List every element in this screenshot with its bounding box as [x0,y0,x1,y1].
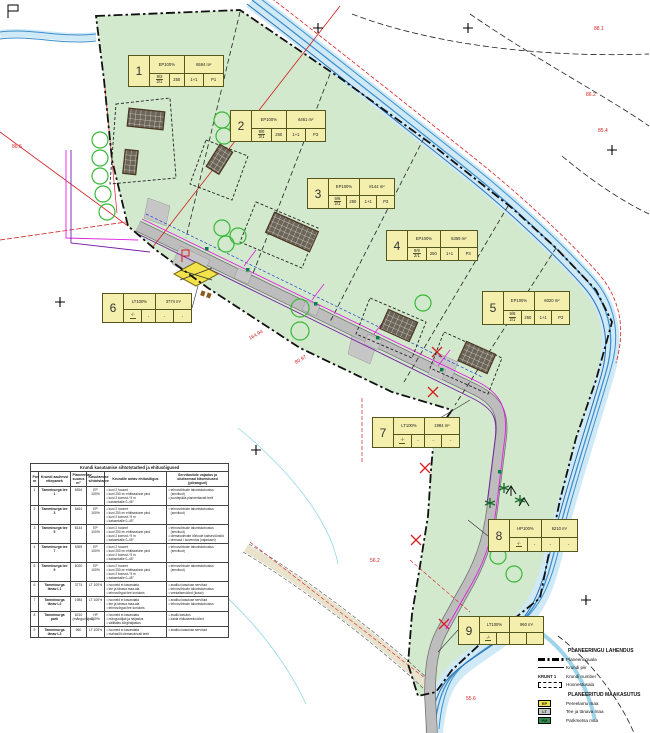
row-pos: 7 [31,597,39,612]
row-restrictions: tehnovõrkude talumiskohustus (servituut) [167,506,229,525]
plot-footprint: 250 [521,310,534,324]
plot-label-6: 6LT100%3774 m²-/---- [102,293,192,323]
plot-parking: P3 [305,128,325,142]
row-pos: 6 [31,582,39,597]
row-size: 5359 [71,544,87,563]
row-name: Tamminurga tee 1 [39,487,71,506]
landuse-color-swatch: PM [538,717,551,724]
table-row: 8Tamminurga park6210 (mänguväljak)HP 100… [31,612,229,627]
row-rights: hooneid ei kavandatatee ja tänava maa-al… [105,597,167,612]
plot-label-3: 3EP100%8144 m²9/62/12501+1P3 [307,178,395,209]
plot-landuse: EP100% [504,292,534,310]
row-restrictions: tehnovõrkude talumiskohustus (servituut)… [167,487,229,506]
plot-parking: P3 [376,195,394,208]
plot-footprint: 250 [271,128,286,142]
plot-label-8: 8HP100%6210 m²-/---- [488,519,578,552]
table-row: 7Tamminurga tänav L21984LT 100%hooneid e… [31,597,229,612]
table-row: 5Tamminurga tee 96020EP 100%kuni 2 hoone… [31,563,229,582]
landuse-color-swatch: LT [538,708,551,715]
row-use: LT 100% [87,597,105,612]
row-restrictions: avaliku kasutuse servituuttehnovõrkude t… [167,597,229,612]
plot-parking: P3 [458,247,477,260]
row-use: EP 100% [87,563,105,582]
plot-area: 6020 m² [534,292,569,310]
plot-number: 4 [387,231,408,260]
row-rights: kuni 2 hoonetkuni 250 m² ehitisealune pi… [105,487,167,506]
row-restrictions: avaliku kasutuse servituut [167,627,229,638]
row-name: Tamminurga tee 7 [39,544,71,563]
legend-item-label: Pereelamu maa [566,701,598,706]
plot-footprint: - [527,537,540,551]
red-annotation: 88.1 [594,26,604,32]
row-restrictions: avaliku kasutuse servituuttehnovõrkude t… [167,582,229,597]
table-row: 3Tamminurga tee 58144EP 100%kuni 2 hoone… [31,525,229,544]
plot-parking: P3 [551,310,569,324]
row-use: EP 100% [87,487,105,506]
row-size: 6210 (mänguväljak) [71,612,87,627]
plot-number: 5 [483,292,504,324]
row-name: Tamminurga tee 9 [39,563,71,582]
plot-number: 6 [103,294,124,322]
row-restrictions: tehnovõrkude talumiskohustus (servituut) [167,544,229,563]
row-name: Tamminurga tänav L3 [39,627,71,638]
dashdot-symbol [538,658,564,661]
legend: PLANEERINGU LAHENDUS PlaneeringualaKrund… [538,647,648,725]
red-annotation: 55.6 [466,696,476,702]
plot-number: 9 [459,617,480,644]
plot-area: 5359 m² [440,231,477,247]
plot-footprint [496,632,509,644]
row-pos: 8 [31,612,39,627]
existing-track [243,542,431,690]
row-restrictions: tehnovõrkude talumiskohustus (servituut)… [167,525,229,544]
row-pos: 3 [31,525,39,544]
plot-storeys: 1+1 [440,247,459,260]
legend-item: Planeeringuala [538,655,648,664]
table-row: 9Tamminurga tänav L3960LT 100%hooneid ei… [31,627,229,638]
plot-label-7: 7LT100%1984 m²-/---- [372,417,460,448]
legend-item-label: Planeeringuala [566,657,597,662]
row-use: EP 100% [87,525,105,544]
plot-ratio: -/- [510,537,527,551]
row-rights: kuni 2 hoonetkuni 250 m² ehitisealune pi… [105,544,167,563]
line-symbol [538,667,564,668]
plot-number: 3 [308,179,329,208]
plot-landuse: LT100% [124,294,155,309]
row-pos: 9 [31,627,39,638]
legend-item-label: Krundi piir [566,665,587,670]
plot-ratio: 9/62/1 [504,310,521,324]
row-size: 6594 [71,487,87,506]
legend-item: KRUNT 1Krundi number [538,672,648,681]
table-title: Krundi kasutamise sihtotstarbed ja ehitu… [31,464,229,472]
table-header: Krundi aadressi ettepanek [39,472,71,487]
plot-label-1: 1EP100%6594 m²9/32/12501+1P1 [128,55,224,87]
plot-storeys [509,632,526,644]
plot-number: 1 [129,56,150,86]
plot-storeys: - [424,434,442,447]
plot-footprint: - [411,434,424,447]
plot-area: 8144 m² [359,179,394,195]
krunt-number-symbol: KRUNT 1 [538,674,556,679]
table-header: Planeeritav suurus m² [71,472,87,487]
row-pos: 4 [31,544,39,563]
row-rights: hooneid ei kavandatatee ja tänava maa-al… [105,582,167,597]
row-pos: 2 [31,506,39,525]
map-corner-mark [8,5,18,18]
table-row: 4Tamminurga tee 75359EP 100%kuni 2 hoone… [31,544,229,563]
plot-storeys: - [541,537,559,551]
plot-parking [526,632,543,644]
plot-parking: - [173,309,191,322]
plot-area: 960 m² [509,617,543,632]
red-annotation: 164.94 [248,329,264,342]
plot-area: 3774 m² [155,294,191,309]
plot-storeys: 1+1 [184,73,204,87]
legend-item-label: Parkmetsa maa [566,718,598,723]
plot-ratio: -/- [394,434,411,447]
row-name: Tamminurga tee 3 [39,506,71,525]
row-rights: hooneid ei kavandatamahasõit olemasoleva… [105,627,167,638]
row-use: EP 100% [87,544,105,563]
table-header: Krundile antav ehitusõigus [105,472,167,487]
plot-landuse: EP100% [408,231,440,247]
plan-data-table: Krundi kasutamise sihtotstarbed ja ehitu… [30,463,229,638]
row-restrictions: avalik kasutuskalda ehituskeeluvöönd [167,612,229,627]
plot-landuse: EP100% [252,111,286,128]
plot-ratio: 9/32/1 [150,73,169,87]
dashedrect-symbol [538,682,562,688]
plot-ratio: 9/02/1 [252,128,271,142]
plot-landuse: LT100% [480,617,509,632]
plot-ratio: 9/62/1 [329,195,346,208]
row-rights: kuni 2 hoonetkuni 250 m² ehitisealune pi… [105,525,167,544]
red-annotation: 80.97 [294,354,308,366]
row-use: LT 100% [87,582,105,597]
legend-landuse-item: EPPereelamu maa [538,699,648,708]
plot-area: 6594 m² [184,56,223,73]
plot-parking: P1 [203,73,223,87]
table-row: 1Tamminurga tee 16594EP 100%kuni 2 hoone… [31,487,229,506]
table-header: Pos nr [31,472,39,487]
plot-parking: - [441,434,459,447]
row-restrictions: tehnovõrkude talumiskohustus (servituut) [167,563,229,582]
red-annotation: 56.2 [370,558,380,564]
red-annotation: 85.4 [598,128,608,134]
row-size: 960 [71,627,87,638]
table-row: 6Tamminurga tänav L13774LT 100%hooneid e… [31,582,229,597]
row-size: 6461 [71,506,87,525]
plot-ratio: -/- [124,309,141,322]
landuse-color-swatch: EP [538,700,551,707]
site-plan-canvas: 164.9480.9788.186.285.486.656.255.6 1EP1… [0,0,650,733]
legend-section1-title: PLANEERINGU LAHENDUS [568,648,648,654]
legend-section2-title: PLANEERITUD MAAKASUTUS [568,692,648,698]
plot-ratio: -/- [480,632,496,644]
plot-storeys: 1+1 [359,195,377,208]
plot-label-5: 5EP100%6020 m²9/62/12501+1P3 [482,291,570,325]
row-rights: kuni 2 hoonetkuni 250 m² ehitisealune pi… [105,563,167,582]
plot-footprint: 250 [346,195,359,208]
plot-landuse: EP100% [150,56,184,73]
row-rights: kuni 2 hoonetkuni 250 m² ehitisealune pi… [105,506,167,525]
plot-number: 8 [489,520,510,551]
plot-storeys: - [155,309,173,322]
plot-label-9: 9LT100%960 m²-/- [458,616,544,645]
row-name: Tamminurga tänav L1 [39,582,71,597]
plot-footprint: - [141,309,154,322]
table-header: Servituutide vajadus ja olulisemad kitse… [167,472,229,487]
plot-number: 7 [373,418,394,447]
plot-landuse: LT100% [394,418,424,434]
row-name: Tamminurga tee 5 [39,525,71,544]
plot-ratio: 9/92/1 [408,247,426,260]
plot-footprint: 250 [169,73,184,87]
row-size: 3774 [71,582,87,597]
plot-label-2: 2EP100%6461 m²9/02/12501+1P3 [230,110,326,142]
legend-item-label: Tee ja tänava maa [566,709,604,714]
plot-area: 6461 m² [286,111,325,128]
plot-area: 6210 m² [541,520,577,537]
row-pos: 5 [31,563,39,582]
red-annotation: 86.6 [12,144,22,150]
legend-landuse-item: LTTee ja tänava maa [538,708,648,717]
legend-item-label: Hoonestusala [566,682,594,687]
row-pos: 1 [31,487,39,506]
legend-item: Hoonestusala [538,681,648,690]
row-use: EP 100% [87,506,105,525]
legend-item-label: Krundi number [566,674,596,679]
row-name: Tamminurga park [39,612,71,627]
plot-landuse: HP100% [510,520,541,537]
plot-parking: - [559,537,577,551]
row-use: LT 100% [87,627,105,638]
row-size: 8144 [71,525,87,544]
red-annotation: 86.2 [586,92,596,98]
legend-landuse-item: PMParkmetsa maa [538,716,648,725]
legend-item: Krundi piir [538,664,648,673]
plot-storeys: 1+1 [286,128,306,142]
plot-footprint: 250 [426,247,440,260]
plot-landuse: EP100% [329,179,359,195]
row-name: Tamminurga tänav L2 [39,597,71,612]
row-size: 6020 [71,563,87,582]
plot-area: 1984 m² [424,418,459,434]
plot-number: 2 [231,111,252,141]
plot-storeys: 1+1 [534,310,552,324]
row-size: 1984 [71,597,87,612]
row-rights: hooneid ei kavandatamänguväljak ja halja… [105,612,167,627]
plot-label-4: 4EP100%5359 m²9/92/12501+1P3 [386,230,478,261]
table-row: 2Tamminurga tee 36461EP 100%kuni 2 hoone… [31,506,229,525]
